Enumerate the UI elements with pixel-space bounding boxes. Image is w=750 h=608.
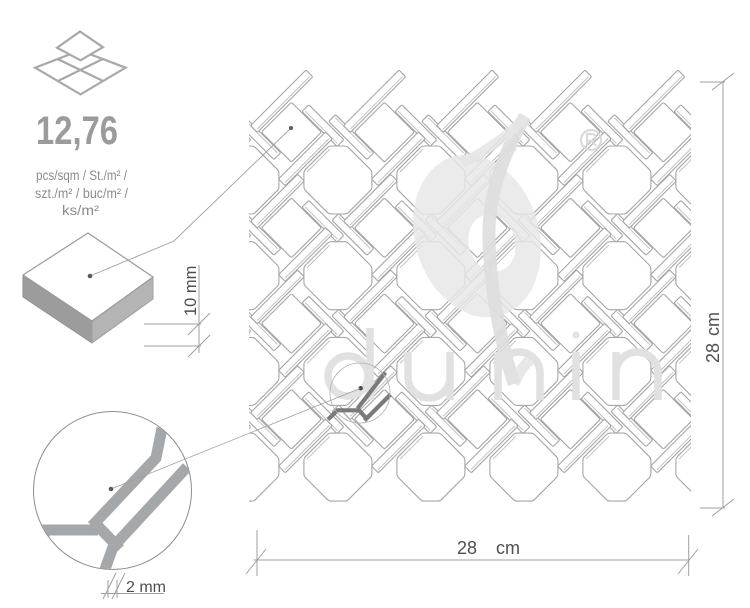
svg-text:12,76: 12,76 <box>36 109 118 153</box>
svg-text:2 mm: 2 mm <box>126 579 166 596</box>
svg-text:cm: cm <box>496 538 520 558</box>
svg-text:cm: cm <box>703 312 723 336</box>
svg-text:28: 28 <box>457 538 477 558</box>
svg-text:ks/m²: ks/m² <box>62 203 100 218</box>
svg-text:10 mm: 10 mm <box>182 266 200 316</box>
svg-text:28: 28 <box>703 343 723 363</box>
svg-text:szt./m² / buc/m² /: szt./m² / buc/m² / <box>35 186 128 201</box>
svg-text:pcs/sqm / St./m² /: pcs/sqm / St./m² / <box>36 168 127 183</box>
